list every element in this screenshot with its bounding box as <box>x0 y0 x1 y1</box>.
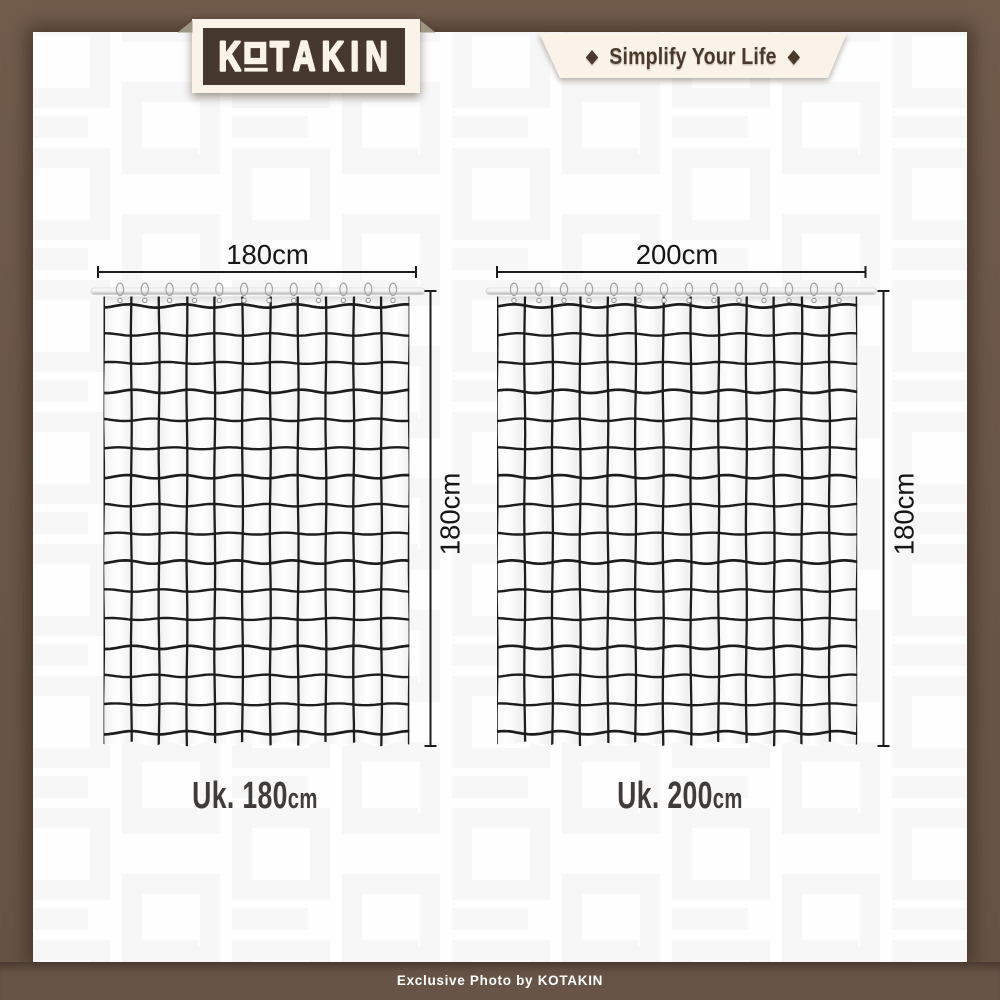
svg-text:180cm: 180cm <box>226 239 309 270</box>
svg-text:TAKIN: TAKIN <box>270 33 388 79</box>
svg-text:K: K <box>219 33 242 79</box>
svg-text:200cm: 200cm <box>636 239 719 270</box>
svg-text:180cm: 180cm <box>435 473 466 556</box>
svg-text:180cm: 180cm <box>888 473 919 556</box>
